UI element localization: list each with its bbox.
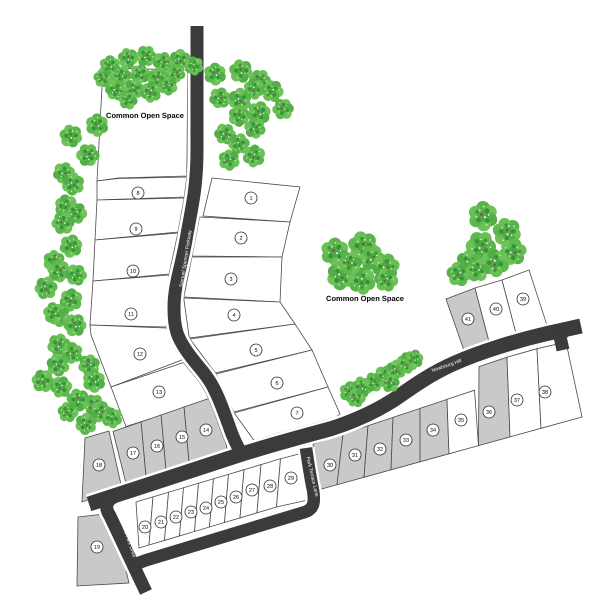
svg-text:1: 1 [249, 196, 252, 202]
svg-text:37: 37 [514, 398, 520, 404]
svg-text:35: 35 [458, 418, 464, 424]
svg-text:10: 10 [130, 269, 136, 275]
svg-text:14: 14 [203, 428, 209, 434]
svg-text:Common Open Space: Common Open Space [106, 111, 184, 120]
svg-text:15: 15 [179, 435, 185, 441]
svg-text:12: 12 [137, 352, 143, 358]
svg-text:21: 21 [158, 520, 164, 526]
svg-text:7: 7 [295, 411, 298, 417]
svg-text:39: 39 [520, 297, 526, 303]
svg-text:26: 26 [233, 495, 239, 501]
svg-text:11: 11 [128, 312, 134, 318]
svg-text:28: 28 [267, 484, 273, 490]
svg-text:13: 13 [156, 390, 162, 396]
svg-text:3: 3 [229, 277, 232, 283]
svg-text:24: 24 [203, 506, 209, 512]
svg-text:33: 33 [403, 438, 409, 444]
svg-text:5: 5 [254, 348, 257, 354]
svg-text:2: 2 [239, 236, 242, 242]
svg-text:19: 19 [94, 545, 100, 551]
svg-text:18: 18 [96, 463, 102, 469]
svg-text:8: 8 [136, 191, 139, 197]
svg-text:6: 6 [275, 381, 278, 387]
svg-text:30: 30 [327, 463, 333, 469]
svg-text:25: 25 [218, 500, 224, 506]
svg-text:38: 38 [542, 390, 548, 396]
svg-text:20: 20 [142, 525, 148, 531]
svg-text:27: 27 [249, 488, 255, 494]
svg-text:Common Open Space: Common Open Space [326, 294, 404, 303]
svg-text:23: 23 [188, 510, 194, 516]
svg-text:41: 41 [465, 317, 471, 323]
svg-text:22: 22 [173, 515, 179, 521]
svg-text:40: 40 [493, 307, 499, 313]
svg-text:29: 29 [288, 476, 294, 482]
svg-text:17: 17 [130, 451, 136, 457]
svg-text:9: 9 [134, 227, 137, 233]
svg-text:31: 31 [352, 453, 358, 459]
svg-text:4: 4 [232, 313, 235, 319]
svg-text:32: 32 [377, 447, 383, 453]
svg-text:36: 36 [486, 410, 492, 416]
svg-text:34: 34 [430, 428, 436, 434]
svg-text:16: 16 [154, 444, 160, 450]
